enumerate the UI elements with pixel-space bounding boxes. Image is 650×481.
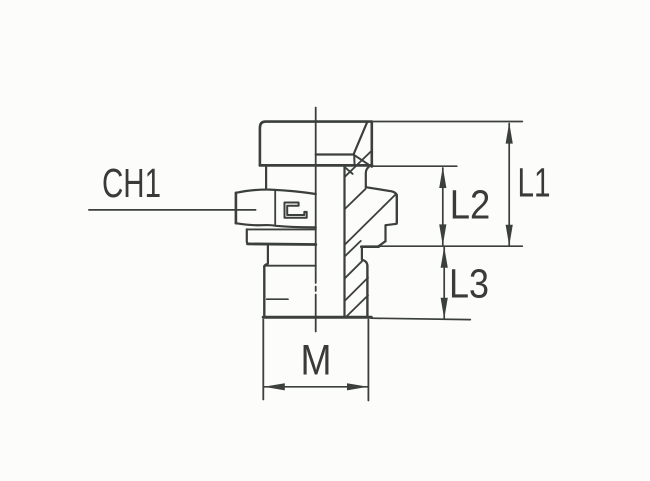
svg-text:L1: L1 [518,159,551,205]
svg-text:L3: L3 [449,261,489,307]
svg-text:CH1: CH1 [102,160,161,206]
svg-text:L2: L2 [450,182,491,228]
svg-text:M: M [301,338,332,385]
